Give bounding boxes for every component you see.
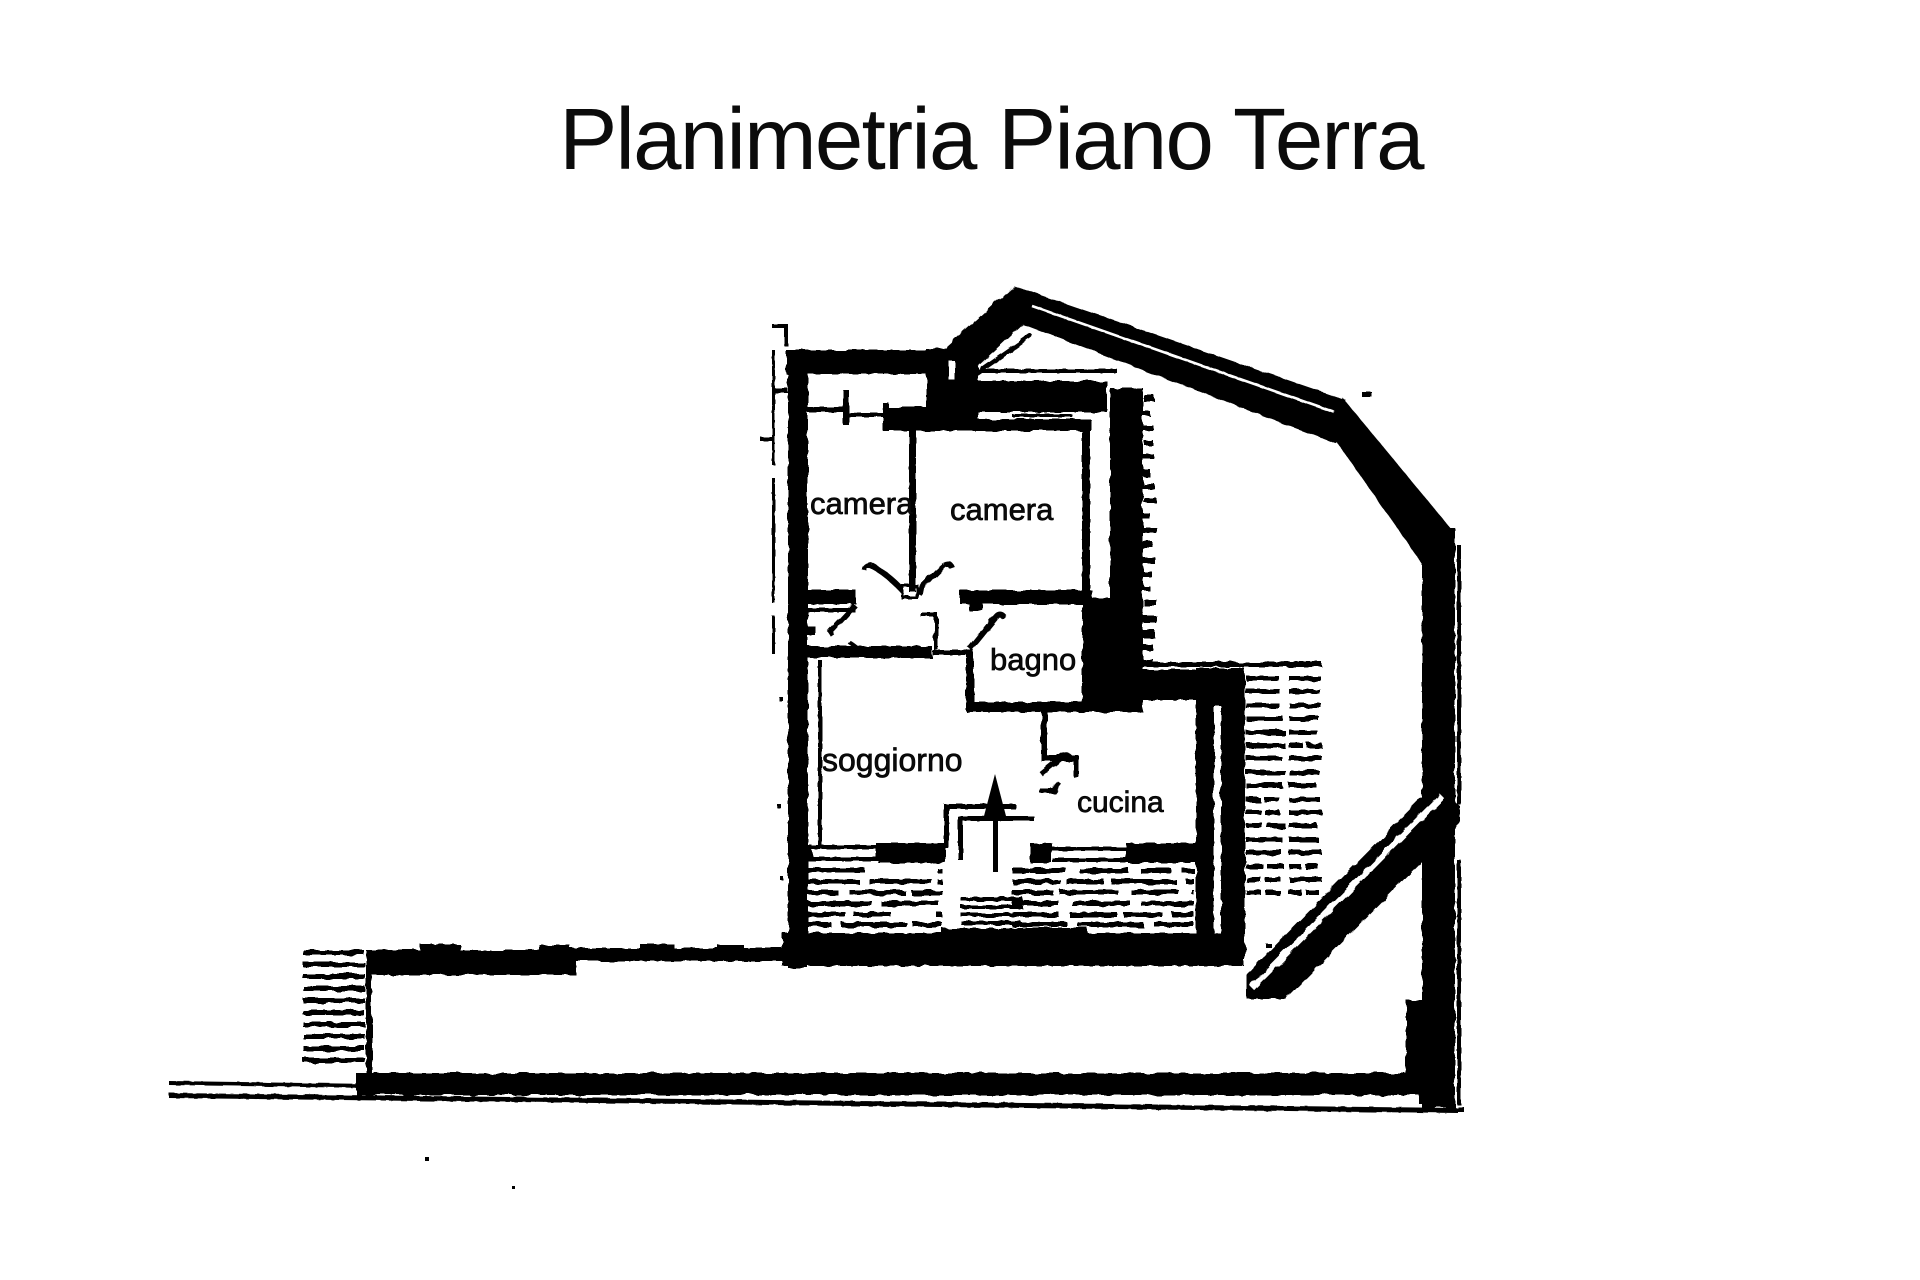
svg-text:bagno: bagno	[990, 642, 1076, 677]
svg-text:camera: camera	[950, 492, 1054, 527]
svg-text:camera: camera	[810, 486, 914, 521]
svg-text:soggiorno: soggiorno	[822, 742, 963, 778]
svg-text:Planimetria Piano Terra: Planimetria Piano Terra	[559, 91, 1425, 188]
svg-text:cucina: cucina	[1077, 786, 1164, 819]
